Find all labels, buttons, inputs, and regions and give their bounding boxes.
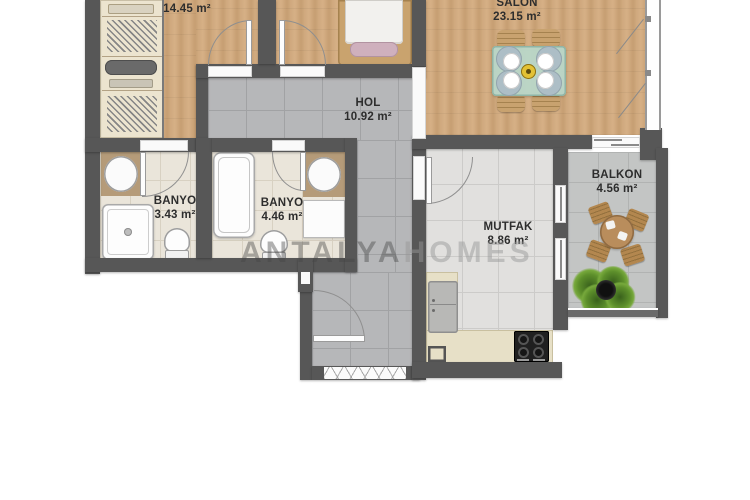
wall-kitchen-bottom [412,362,562,378]
room2-door-threshold [280,66,325,77]
burner [533,347,544,358]
plate [537,72,554,89]
wall-salon-left-upper [412,0,426,66]
bathroom2-area: 4.46 m² [261,210,304,224]
plant-pot [596,280,616,300]
balcony-area: 4.56 m² [592,182,642,196]
wall-balcony-bottom [568,308,658,317]
kitchen-name: MUTFAK [483,220,532,234]
hall-salon-passage [412,67,426,139]
bedroom-area: 14.45 m² [163,2,211,16]
shaft-box [428,346,446,362]
shower [102,204,154,260]
hanger-rail-icon [107,96,157,132]
balcony-sliding-door [592,137,640,148]
stove-cooktop [514,331,549,362]
sink [104,156,138,192]
bed-pillow [350,42,398,57]
bed-duvet [345,0,403,44]
rolled-blanket [105,60,157,75]
dining-chair [497,94,525,112]
balcony-label: BALKON 4.56 m² [592,168,642,196]
floor-plan-page: { "watermark": { "part1": "ANTALYA", "pa… [0,0,750,500]
wardrobe-shelf [102,16,162,17]
shaft-opening [301,272,310,284]
bathroom2-label: BANYO 4.46 m² [261,196,304,224]
salon-area: 23.15 m² [493,10,541,24]
fridge [428,281,458,333]
bathroom1-area: 3.43 m² [154,208,197,222]
wardrobe [100,0,164,138]
salon-name: SALON [493,0,541,10]
kitchen-window [555,238,566,280]
bedroom-label: ODA 14.45 m² [163,0,211,16]
toilet [164,228,190,260]
bathroom1-door-threshold [140,140,188,151]
burner [518,347,529,358]
kitchen-door-threshold [413,156,425,200]
dining-chair [532,29,560,47]
entry-door-hatch [324,367,406,379]
bathroom1-door-leaf [141,153,145,195]
room2-door-leaf [280,21,284,64]
sink [307,157,341,192]
bed [338,0,412,66]
hall-area: 10.92 m² [344,110,392,124]
bathroom2-name: BANYO [261,196,304,210]
bathroom2-door-threshold [272,140,305,151]
wall-bedroom-room2 [258,0,276,64]
salon-label: SALON 23.15 m² [493,0,541,24]
wall-left-outer [85,0,100,274]
table-centerpiece [521,64,536,79]
hall-label: HOL 10.92 m² [344,96,392,124]
watermark: ANTALYAHOMES [240,236,534,270]
bathroom1-label: BANYO 3.43 m² [154,194,197,222]
burner [518,334,529,345]
burner [533,334,544,345]
folded-item [108,4,154,14]
kitchen-door-leaf [427,158,431,203]
plate [503,72,520,89]
entry-door-leaf [314,336,364,341]
bedroom-door-leaf [247,21,251,64]
bathroom1-name: BANYO [154,194,197,208]
bedroom-door-threshold [208,66,252,77]
wardrobe-shelf [102,90,162,91]
bathtub [213,152,255,238]
bathroom2-door-leaf [301,153,305,190]
balcony-table [600,215,634,249]
hanger-rail-icon [107,20,157,52]
plate [503,53,520,70]
wardrobe-shelf [102,56,162,57]
kitchen-window [555,185,566,223]
folded-item [109,79,153,88]
wall-salon-bottom [412,135,592,149]
plate [537,53,554,70]
washing-machine [303,200,345,238]
wall-bath-divider [196,138,212,258]
floor-plan: ODA 14.45 m² SALON 23.15 m² HOL 10.92 m²… [0,0,750,500]
hall-name: HOL [344,96,392,110]
balcony-name: BALKON [592,168,642,182]
salon-window [645,0,661,130]
watermark-part1: ANTALYA [240,236,404,269]
shower-drain [124,228,132,236]
watermark-part2: HOMES [404,236,534,269]
wall-balcony-right [656,148,668,318]
